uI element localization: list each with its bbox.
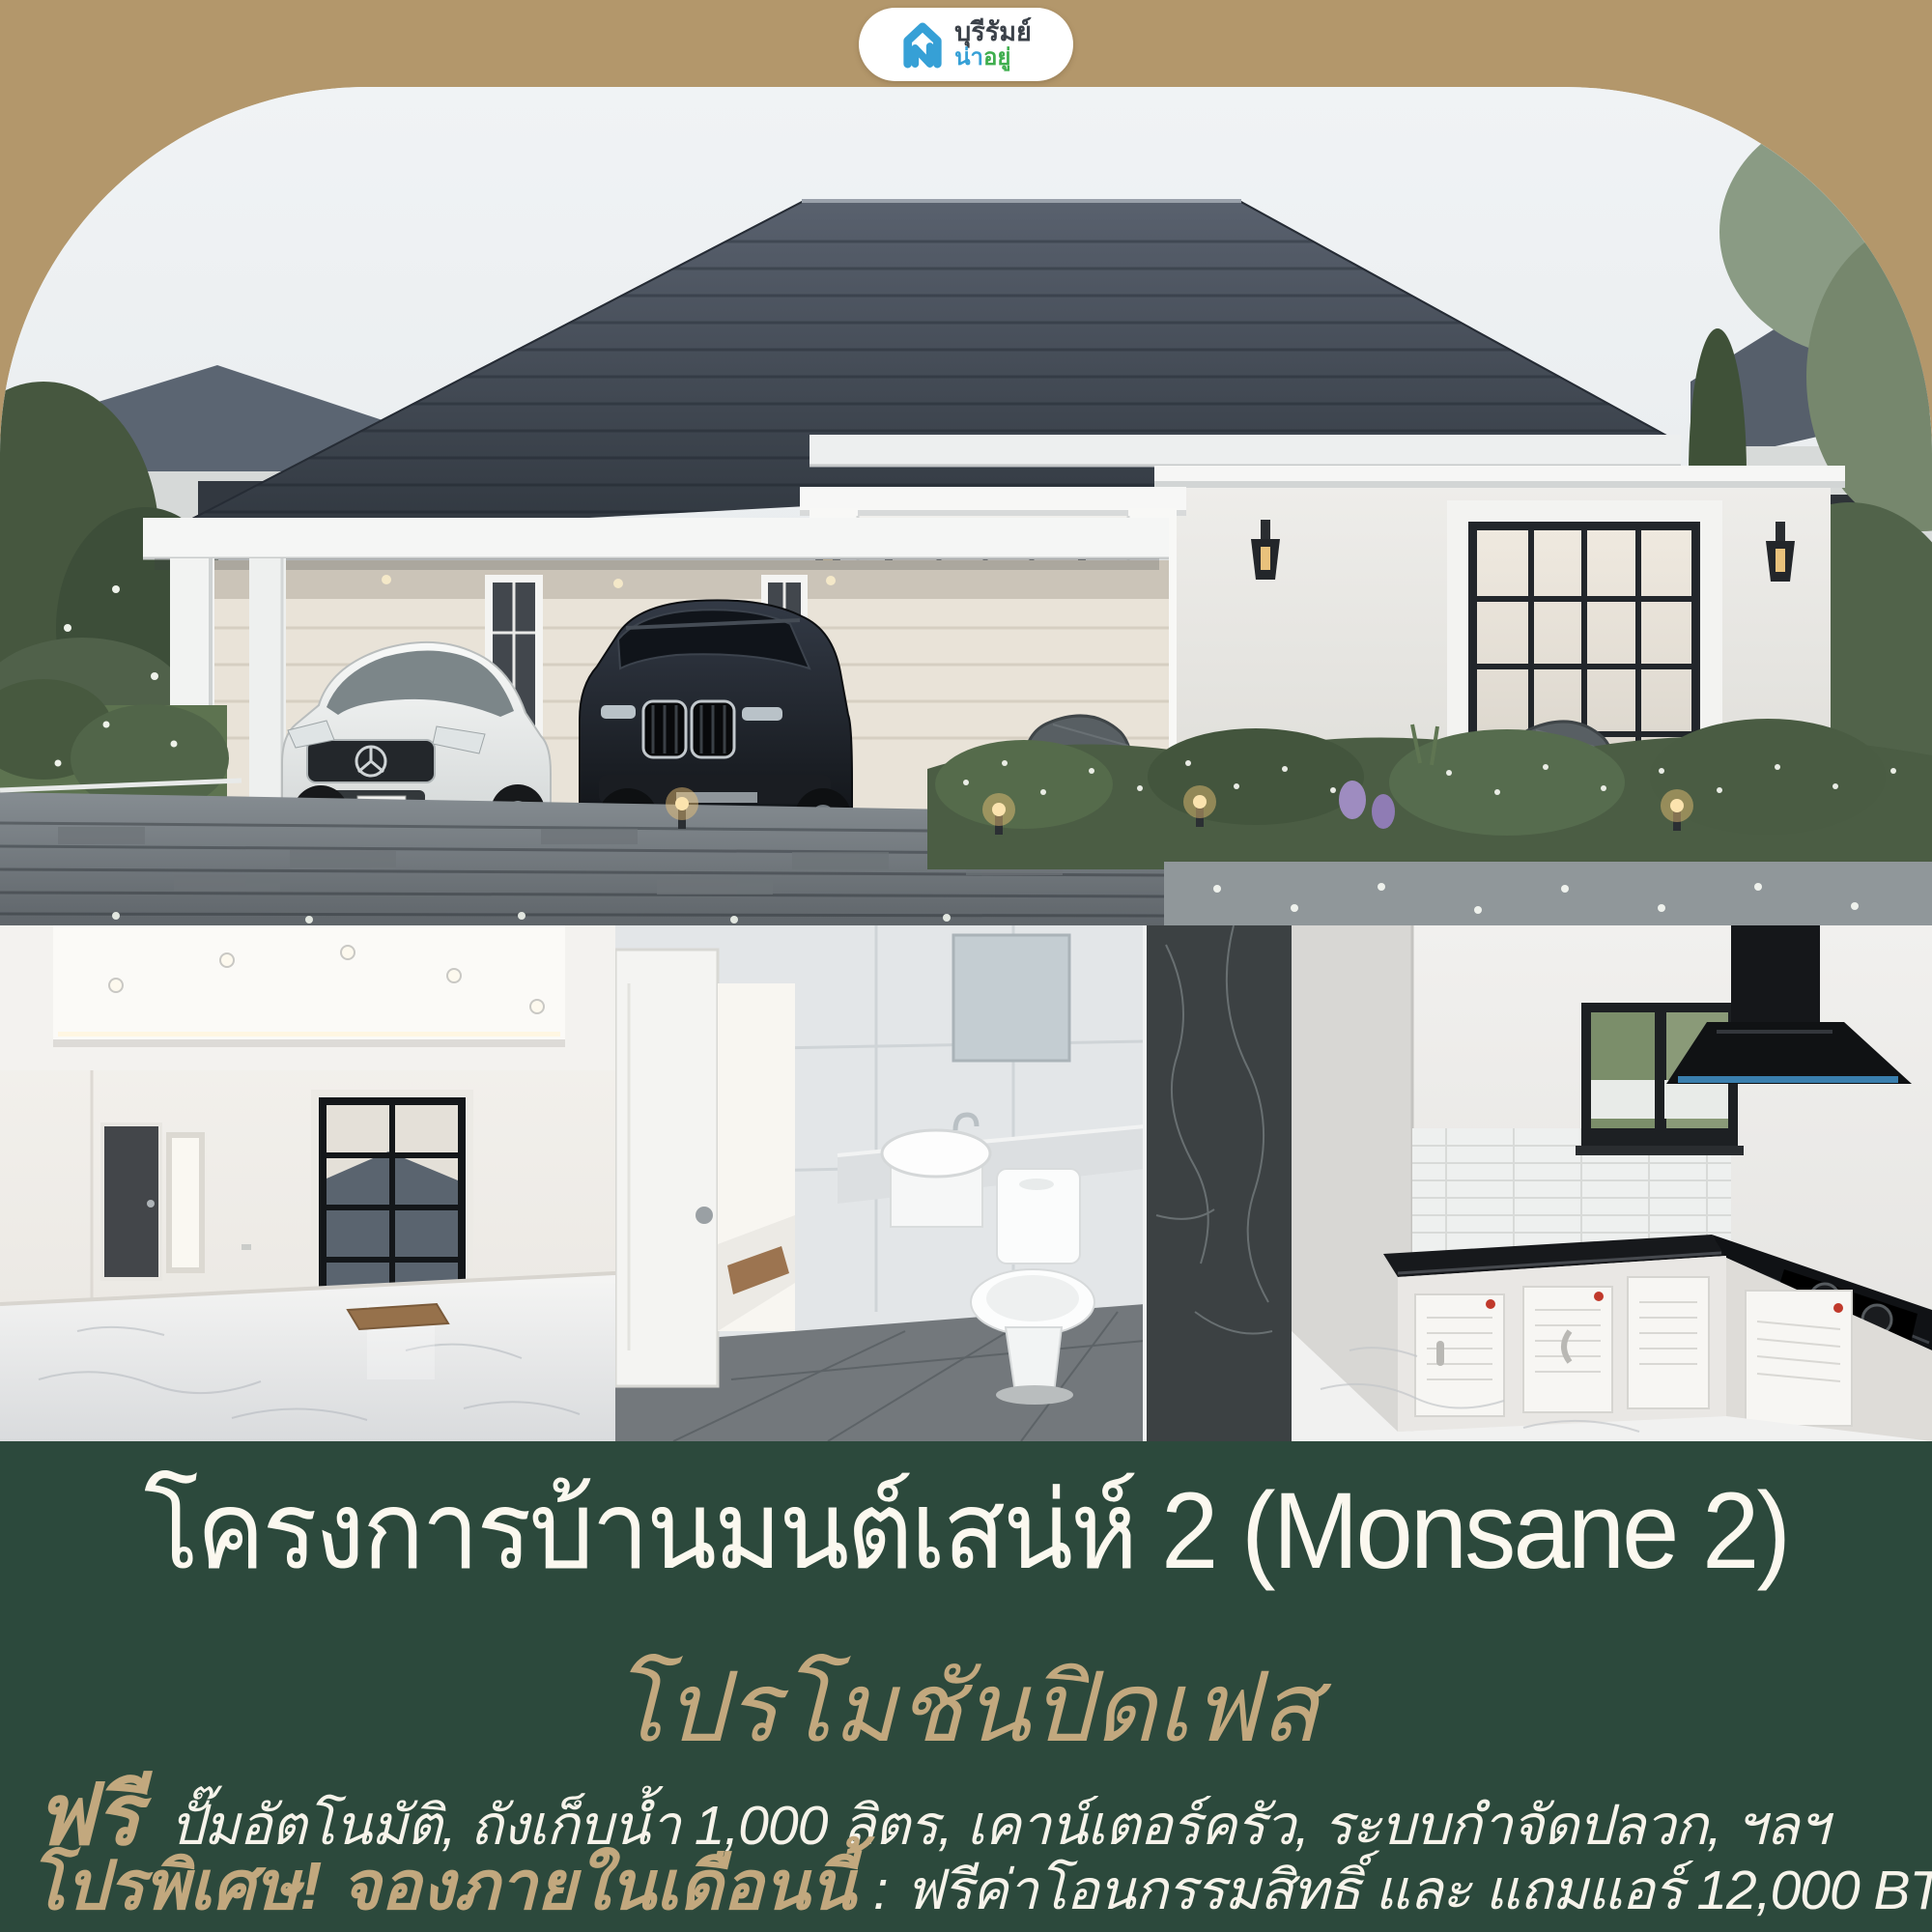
glass-door bbox=[311, 1090, 473, 1306]
brand-logo: บุรีรัมย์ น่าอยู่ bbox=[859, 8, 1073, 81]
project-title: โครงการบ้านมนต์เสน่ห์ 2 (Monsane 2) bbox=[48, 1474, 1884, 1588]
bathroom-door bbox=[615, 950, 795, 1386]
mirror bbox=[953, 935, 1069, 1061]
brand-name-line2: น่าอยู่ bbox=[954, 46, 1032, 70]
top-bar: บุรีรัมย์ น่าอยู่ bbox=[0, 0, 1932, 87]
brand-name-line1: บุรีรัมย์ bbox=[954, 19, 1032, 46]
living-room-photo bbox=[0, 925, 615, 1441]
brand-logo-text: บุรีรัมย์ น่าอยู่ bbox=[954, 19, 1032, 70]
interior-photo-row bbox=[0, 925, 1932, 1441]
open-doorway bbox=[166, 1132, 205, 1273]
dark-door bbox=[100, 1122, 162, 1281]
kitchen-photo bbox=[1292, 925, 1932, 1441]
hero-exterior-photo bbox=[0, 87, 1932, 925]
special-offer-line: โปรพิเศษ! จองภายในเดือนนี้ : ฟรีค่าโอนกร… bbox=[29, 1832, 1932, 1932]
special-label: โปรพิเศษ! จองภายในเดือนนี้ bbox=[29, 1832, 856, 1932]
house-logo-icon bbox=[900, 20, 945, 69]
bathroom-photo bbox=[615, 925, 1292, 1441]
house-exterior-illustration bbox=[0, 87, 1932, 925]
promo-panel: โครงการบ้านมนต์เสน่ห์ 2 (Monsane 2) โปรโ… bbox=[0, 1441, 1932, 1932]
real-estate-poster: บุรีรัมย์ น่าอยู่ bbox=[0, 0, 1932, 1932]
special-detail-text: ฟรีค่าโอนกรรมสิทธิ์ และ แถมแอร์ 12,000 B… bbox=[905, 1847, 1932, 1932]
dark-marble-wall bbox=[1145, 925, 1292, 1441]
special-separator: : bbox=[873, 1859, 888, 1922]
